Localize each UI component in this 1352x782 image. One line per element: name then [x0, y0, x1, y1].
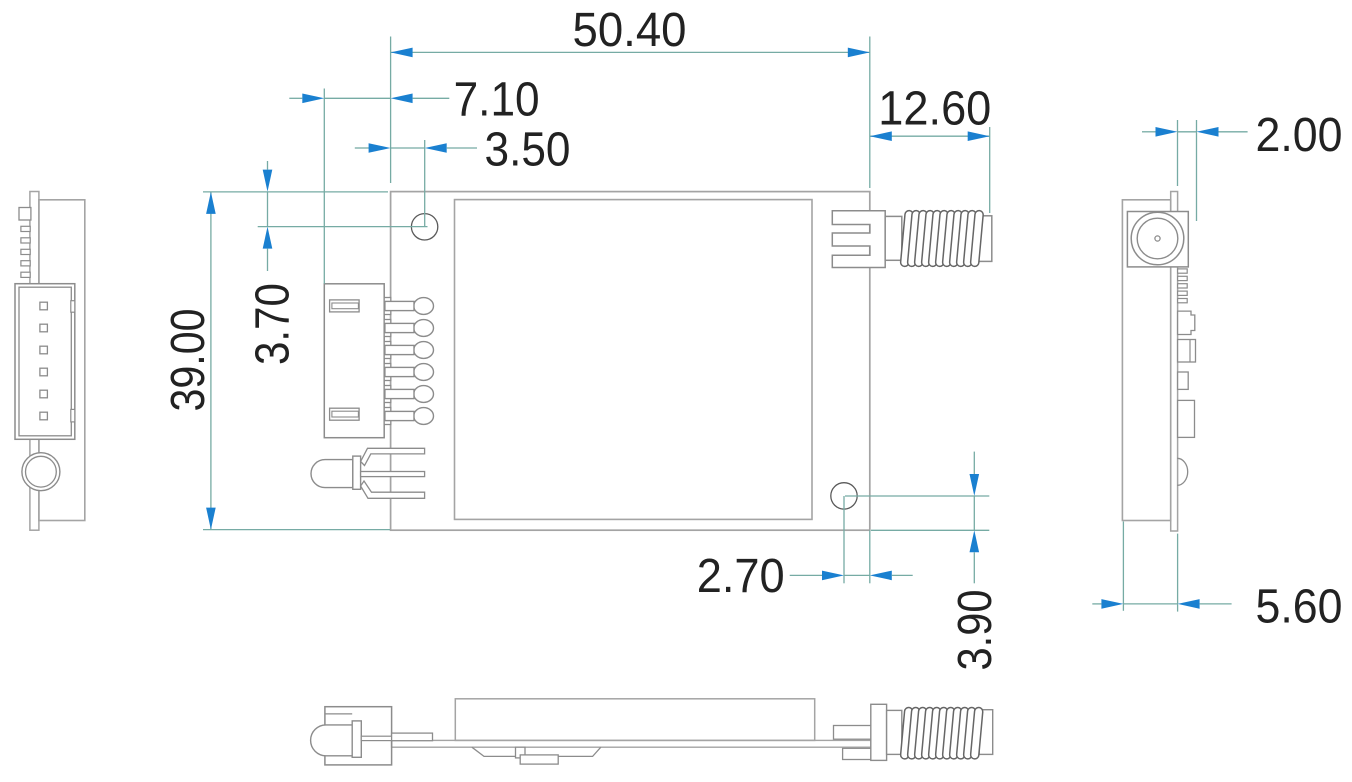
- svg-text:7.10: 7.10: [454, 73, 540, 127]
- svg-text:2.70: 2.70: [697, 549, 785, 603]
- svg-text:3.70: 3.70: [246, 283, 300, 365]
- svg-text:3.50: 3.50: [485, 123, 571, 177]
- svg-text:2.00: 2.00: [1256, 108, 1343, 162]
- svg-text:12.60: 12.60: [878, 82, 991, 136]
- svg-text:3.90: 3.90: [948, 590, 1002, 671]
- svg-text:5.60: 5.60: [1256, 580, 1343, 634]
- svg-text:39.00: 39.00: [161, 309, 215, 412]
- svg-text:50.40: 50.40: [573, 3, 687, 57]
